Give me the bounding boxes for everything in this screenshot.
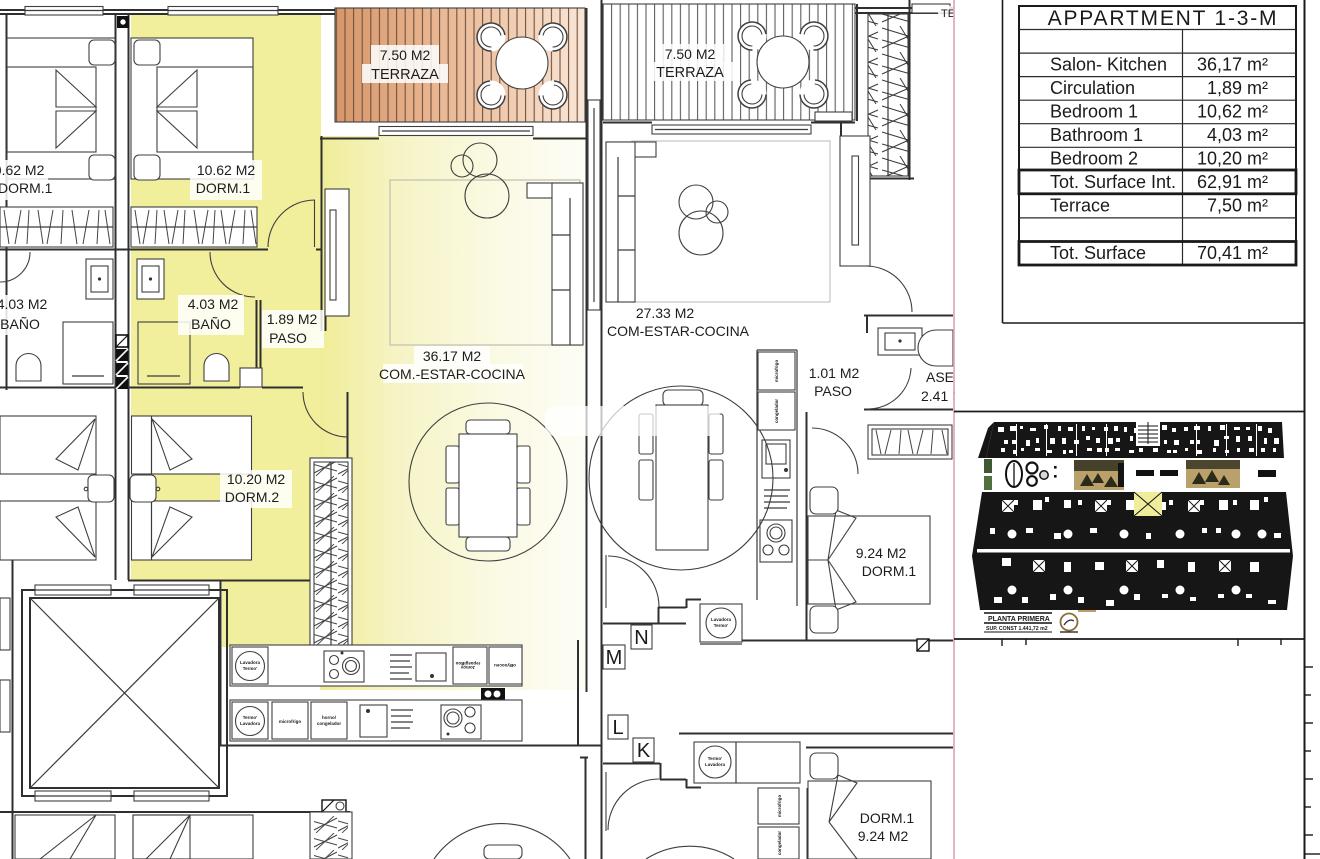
svg-text:SUP. CONST 1.441,72 m2: SUP. CONST 1.441,72 m2	[986, 626, 1048, 632]
svg-text:microfrigo: microfrigo	[774, 360, 779, 383]
svg-text:Termo': Termo'	[243, 715, 258, 720]
svg-text:4.03 M2: 4.03 M2	[188, 296, 239, 312]
svg-text:10.20 M2: 10.20 M2	[227, 471, 286, 487]
svg-text:62,91 m²: 62,91 m²	[1197, 172, 1268, 192]
svg-text:Jomoy: Jomoy	[460, 665, 475, 670]
svg-text:BAÑO: BAÑO	[0, 316, 40, 332]
svg-text:Tot. Surface: Tot. Surface	[1050, 243, 1146, 263]
svg-text:36.17 M2: 36.17 M2	[423, 348, 482, 364]
svg-text:Tot. Surface Int.: Tot. Surface Int.	[1050, 172, 1176, 192]
svg-text:DORM.1: DORM.1	[860, 810, 915, 826]
svg-text:BAÑO: BAÑO	[191, 316, 231, 332]
svg-text:27.33 M2: 27.33 M2	[636, 305, 695, 321]
svg-text:1.89 M2: 1.89 M2	[267, 311, 318, 327]
svg-text:Lavadora: Lavadora	[240, 721, 261, 726]
svg-text:36,17 m²: 36,17 m²	[1197, 55, 1268, 75]
svg-text:1,89 m²: 1,89 m²	[1207, 78, 1268, 98]
svg-text:70,41 m²: 70,41 m²	[1197, 243, 1268, 263]
svg-text:Termo': Termo'	[243, 666, 258, 671]
svg-text:7.50 M2: 7.50 M2	[380, 47, 431, 63]
svg-text:TE: TE	[941, 8, 955, 20]
svg-text:10,62 m²: 10,62 m²	[1197, 102, 1268, 122]
svg-text:4.03 M2: 4.03 M2	[0, 296, 48, 312]
svg-text:Salon- Kitchen: Salon- Kitchen	[1050, 55, 1167, 75]
svg-text:10,20 m²: 10,20 m²	[1197, 149, 1268, 169]
svg-text:Lavadora: Lavadora	[705, 762, 726, 767]
svg-text:COM.-ESTAR-COCINA: COM.-ESTAR-COCINA	[379, 366, 526, 382]
svg-text:9.24 M2: 9.24 M2	[856, 545, 907, 561]
svg-text:10.62 M2: 10.62 M2	[197, 162, 256, 178]
svg-text:microfrigo: microfrigo	[777, 795, 782, 818]
svg-text:congelador: congelador	[774, 399, 779, 424]
svg-text:DORM.1: DORM.1	[196, 180, 251, 196]
svg-text:9.24 M2: 9.24 M2	[858, 828, 909, 844]
svg-text:oByooceu: oByooceu	[494, 663, 516, 668]
svg-text:PLANTA PRIMERA: PLANTA PRIMERA	[988, 616, 1050, 623]
svg-text:Termo': Termo'	[708, 756, 723, 761]
svg-text:Circulation: Circulation	[1050, 78, 1135, 98]
svg-text:Termo': Termo'	[714, 623, 729, 628]
svg-text:COM-ESTAR-COCINA: COM-ESTAR-COCINA	[607, 323, 750, 339]
svg-text:TERRAZA: TERRAZA	[371, 67, 439, 83]
svg-text:microfrigo: microfrigo	[279, 719, 302, 724]
svg-text:N: N	[634, 627, 648, 649]
svg-text:10.62 M2: 10.62 M2	[0, 162, 45, 178]
svg-text:Bedroom 1: Bedroom 1	[1050, 102, 1138, 122]
svg-text:Terrace: Terrace	[1050, 196, 1110, 216]
svg-text:PASO: PASO	[814, 383, 852, 399]
svg-text:DORM.2: DORM.2	[225, 489, 280, 505]
svg-text:1.01 M2: 1.01 M2	[809, 365, 860, 381]
svg-text:DORM.1: DORM.1	[862, 563, 917, 579]
svg-text:L: L	[612, 717, 623, 739]
svg-text:congelador: congelador	[777, 831, 782, 856]
svg-text:K: K	[637, 740, 651, 762]
svg-text:horno/: horno/	[322, 715, 337, 720]
svg-text:Lavadora: Lavadora	[711, 617, 732, 622]
svg-text:M: M	[606, 647, 623, 669]
svg-text:TERRAZA: TERRAZA	[656, 65, 724, 81]
svg-text:Bedroom 2: Bedroom 2	[1050, 149, 1138, 169]
svg-text:APPARTMENT 1-3-M: APPARTMENT 1-3-M	[1048, 7, 1279, 30]
svg-text:Lavadora: Lavadora	[240, 660, 261, 665]
svg-text:congelador: congelador	[317, 721, 342, 726]
svg-text:7,50 m²: 7,50 m²	[1207, 196, 1268, 216]
svg-text:PASO: PASO	[269, 330, 307, 346]
svg-text:7.50 M2: 7.50 M2	[665, 46, 716, 62]
svg-text:Bathroom 1: Bathroom 1	[1050, 125, 1143, 145]
svg-text:DORM.1: DORM.1	[0, 180, 53, 196]
svg-text:4,03 m²: 4,03 m²	[1207, 125, 1268, 145]
